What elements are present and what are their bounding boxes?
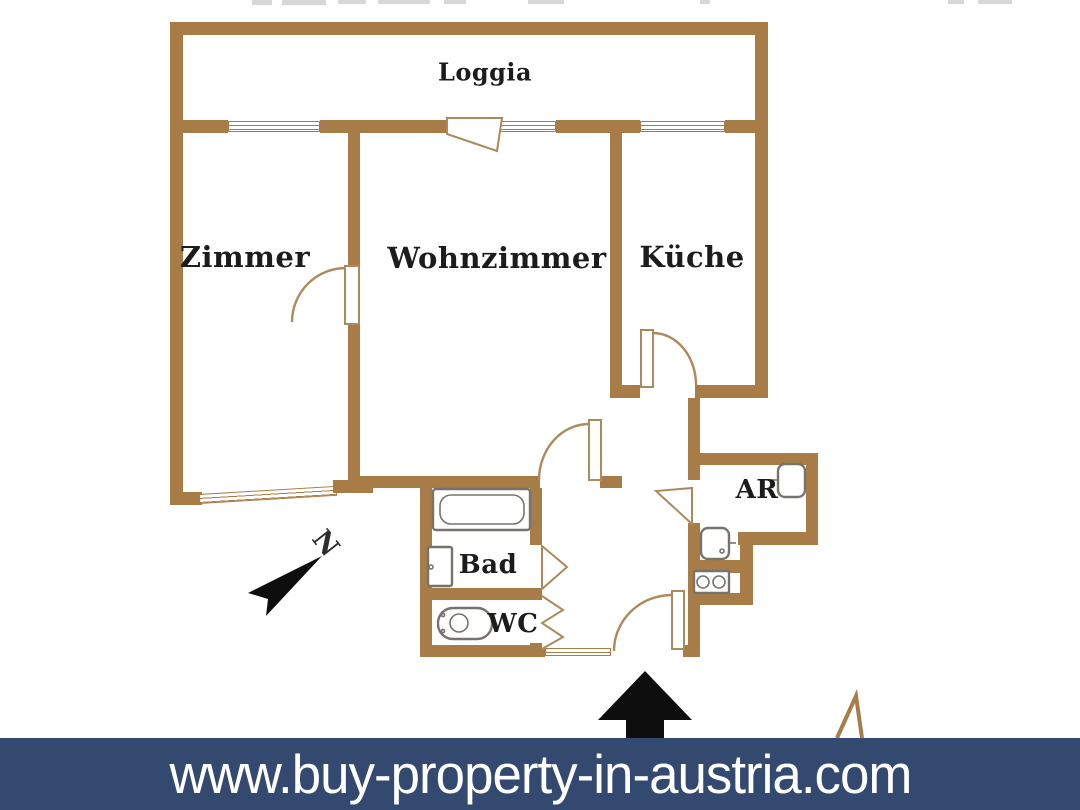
- room-label-wohnzimmer: Wohnzimmer: [387, 241, 606, 275]
- room-label-kueche: Küche: [639, 240, 744, 274]
- door-leaf: [641, 330, 653, 387]
- room-label-ar: AR: [736, 475, 779, 505]
- door-arc: [292, 268, 346, 322]
- room-label-bad: Bad: [459, 550, 518, 580]
- compass-north-arrow: [248, 556, 322, 616]
- door-leaf: [345, 266, 359, 324]
- door-wedge: [542, 546, 567, 589]
- room-label-wc: WC: [488, 609, 539, 639]
- hob-icon: [694, 571, 729, 593]
- door-arc: [539, 424, 589, 480]
- balcony-door-leaf: [447, 118, 502, 151]
- plan-vector-layer: [0, 0, 1080, 810]
- door-leaf: [589, 420, 601, 480]
- basin-icon: [428, 547, 452, 586]
- folding-door: [542, 596, 563, 649]
- website-url: www.buy-property-in-austria.com: [169, 742, 911, 806]
- door-arc: [614, 595, 672, 651]
- entrance-arrow-stem: [626, 720, 664, 738]
- sink-icon: [778, 464, 805, 497]
- toilet-icon: [438, 608, 492, 639]
- room-label-zimmer: Zimmer: [180, 240, 310, 274]
- room-label-loggia: Loggia: [438, 58, 532, 87]
- entrance-door-leaf: [672, 591, 684, 649]
- door-arc: [653, 333, 696, 385]
- artifact-mark: [837, 696, 862, 738]
- floor-plan: Loggia Zimmer Wohnzimmer Küche Bad WC AR…: [0, 0, 1080, 810]
- sink-icon: [701, 528, 729, 559]
- entrance-arrow: [598, 671, 692, 720]
- website-banner: www.buy-property-in-austria.com: [0, 738, 1080, 810]
- door-wedge: [656, 488, 692, 524]
